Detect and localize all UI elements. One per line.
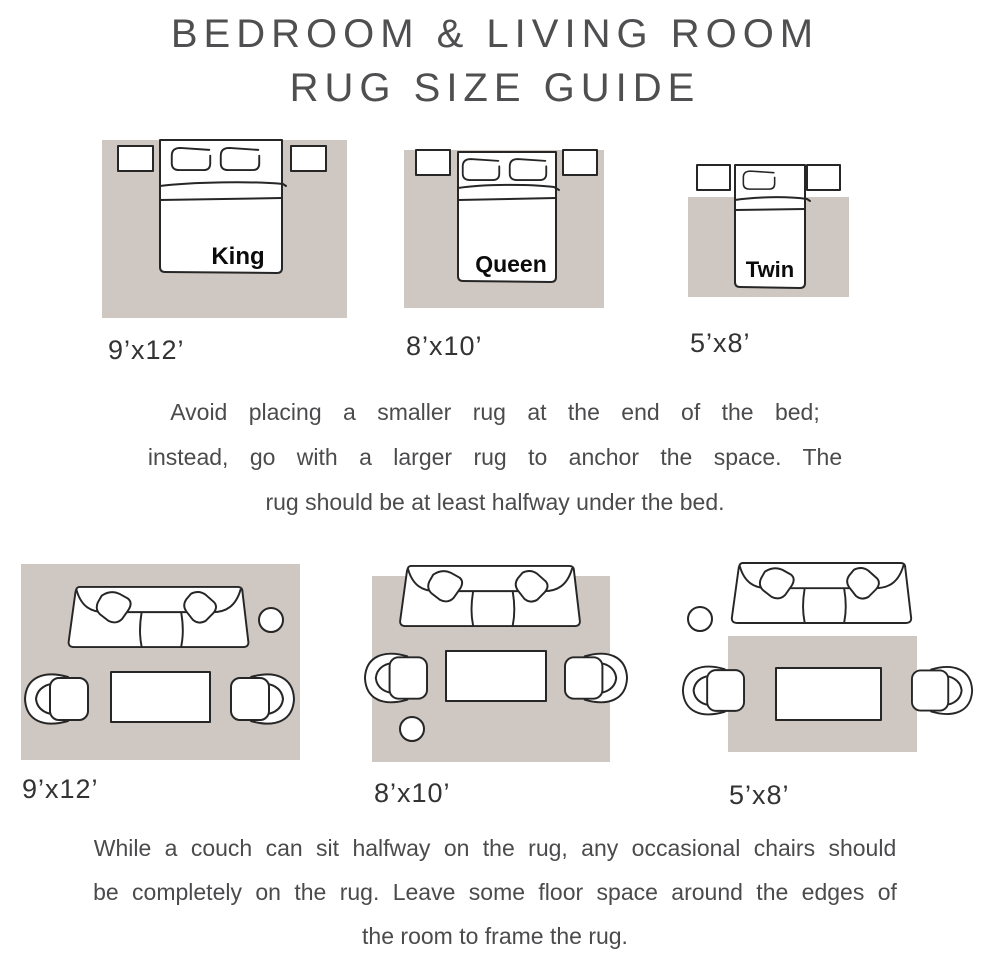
bed-size-label: Queen bbox=[475, 251, 547, 277]
coffee-table-icon bbox=[111, 672, 210, 722]
armchair-icon bbox=[231, 674, 294, 723]
sofa-icon bbox=[400, 566, 580, 626]
armchair-icon bbox=[912, 667, 972, 714]
stool-icon bbox=[400, 717, 424, 741]
bedroom-diagram-twin: Twin bbox=[688, 163, 849, 297]
page-title-line1: BEDROOM & LIVING ROOM bbox=[0, 12, 990, 57]
rug-dimension-label: 9’x12’ bbox=[22, 774, 99, 805]
side-table-icon bbox=[688, 607, 712, 631]
living-room-diagram-5x8 bbox=[676, 558, 978, 758]
bed-size-label: King bbox=[211, 243, 264, 270]
bedroom-tip-text: Avoid placing a smaller rug at the end o… bbox=[0, 390, 990, 525]
coffee-table-icon bbox=[776, 668, 881, 720]
rug-dimension-label: 5’x8’ bbox=[690, 328, 751, 359]
armchair-icon bbox=[365, 654, 427, 702]
armchair-icon bbox=[683, 667, 744, 715]
armchair-icon bbox=[565, 654, 627, 702]
rug-dimension-label: 5’x8’ bbox=[729, 780, 790, 811]
tip-line: the room to frame the rug. bbox=[0, 914, 990, 958]
twin-bed-icon: Twin bbox=[735, 165, 810, 288]
rug-dimension-label: 8’x10’ bbox=[406, 331, 483, 362]
living-room-diagram-9x12 bbox=[21, 564, 300, 760]
sofa-icon bbox=[732, 563, 911, 623]
rug-dimension-label: 8’x10’ bbox=[374, 778, 451, 809]
tip-line: instead, go with a larger rug to anchor … bbox=[0, 435, 990, 480]
tip-line: While a couch can sit halfway on the rug… bbox=[0, 826, 990, 870]
nightstand-icon bbox=[697, 165, 730, 190]
rug-size-guide-infographic: BEDROOM & LIVING ROOM RUG SIZE GUIDE Kin… bbox=[0, 0, 990, 962]
page-title-line2: RUG SIZE GUIDE bbox=[0, 66, 990, 111]
side-table-icon bbox=[259, 608, 283, 632]
nightstand-icon bbox=[416, 150, 450, 175]
bedroom-diagram-queen: Queen bbox=[404, 150, 604, 308]
tip-line: be completely on the rug. Leave some flo… bbox=[0, 870, 990, 914]
nightstand-icon bbox=[563, 150, 597, 175]
nightstand-icon bbox=[118, 146, 153, 171]
bed-size-label: Twin bbox=[746, 257, 794, 282]
nightstand-icon bbox=[291, 146, 326, 171]
living-room-tip-text: While a couch can sit halfway on the rug… bbox=[0, 826, 990, 958]
coffee-table-icon bbox=[446, 651, 546, 701]
tip-line: rug should be at least halfway under the… bbox=[0, 480, 990, 525]
armchair-icon bbox=[25, 674, 88, 723]
nightstand-icon bbox=[807, 165, 840, 190]
living-room-diagram-8x10 bbox=[350, 560, 630, 772]
rug-dimension-label: 9’x12’ bbox=[108, 335, 185, 366]
bedroom-diagram-king: King bbox=[102, 140, 347, 318]
tip-line: Avoid placing a smaller rug at the end o… bbox=[0, 390, 990, 435]
sofa-icon bbox=[69, 587, 249, 647]
king-bed-icon: King bbox=[160, 140, 286, 273]
queen-bed-icon: Queen bbox=[458, 152, 559, 282]
